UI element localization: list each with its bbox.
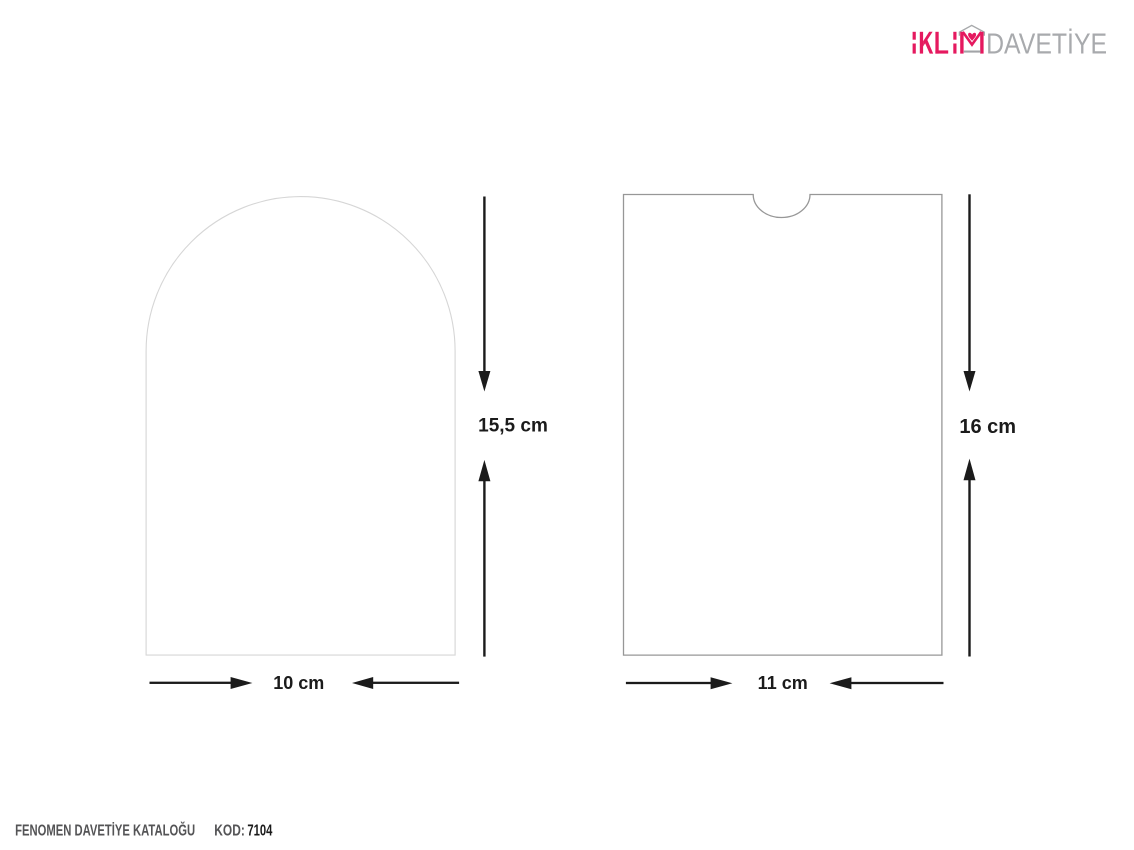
svg-text:11 cm: 11 cm (758, 673, 808, 693)
svg-text:10 cm: 10 cm (273, 673, 324, 693)
svg-text:7104: 7104 (247, 822, 272, 839)
svg-text:16 cm: 16 cm (959, 416, 1016, 438)
svg-text:DAVETİYE: DAVETİYE (986, 28, 1107, 61)
svg-text:15,5 cm: 15,5 cm (478, 416, 548, 437)
svg-text:KOD:: KOD: (214, 822, 245, 839)
svg-text:FENOMEN DAVETİYE KATALOĞU: FENOMEN DAVETİYE KATALOĞU (15, 820, 195, 839)
